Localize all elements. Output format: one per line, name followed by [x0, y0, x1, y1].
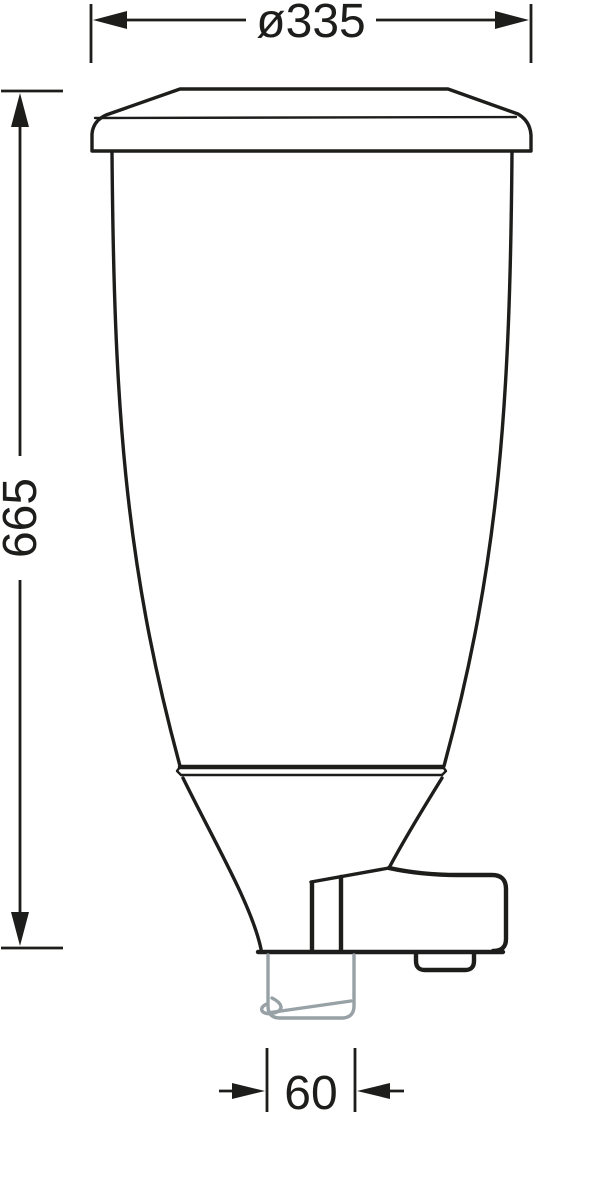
dimension-outlet-width: 60: [219, 1048, 404, 1120]
body-bottom-rim-left-cap: [177, 767, 181, 775]
technical-drawing-canvas: ø335 665 60: [0, 0, 606, 1200]
bracket-bottom-tab: [416, 953, 474, 970]
funnel-right-edge: [389, 778, 442, 868]
funnel-left-edge: [183, 778, 261, 949]
height-arrow-down: [11, 912, 29, 946]
body-bottom-rim-right-cap: [442, 767, 446, 775]
height-label: 665: [0, 478, 47, 558]
lid-rim-line: [95, 117, 516, 118]
dimension-diameter-top: ø335: [91, 0, 531, 63]
outlet-arrow-left: [232, 1083, 265, 1099]
height-arrow-up: [11, 93, 29, 127]
diameter-label: ø335: [256, 0, 365, 48]
diameter-arrow-left: [93, 11, 127, 29]
lid-outline: [92, 89, 531, 151]
body-left-side: [112, 152, 180, 766]
outlet-pipe: [262, 955, 354, 1018]
tank-body: [112, 152, 512, 775]
cistern-dimension-drawing: ø335 665 60: [0, 0, 606, 1200]
diameter-arrow-right: [495, 11, 529, 29]
lid: [92, 89, 531, 151]
bracket-outline: [389, 868, 506, 951]
dimension-height: 665: [0, 91, 63, 948]
outlet-label: 60: [284, 1067, 337, 1120]
bracket-front-plate-top-edge: [311, 868, 389, 882]
valve-bracket: [311, 868, 506, 970]
body-right-side: [444, 152, 512, 766]
outlet-arrow-right: [357, 1083, 390, 1099]
